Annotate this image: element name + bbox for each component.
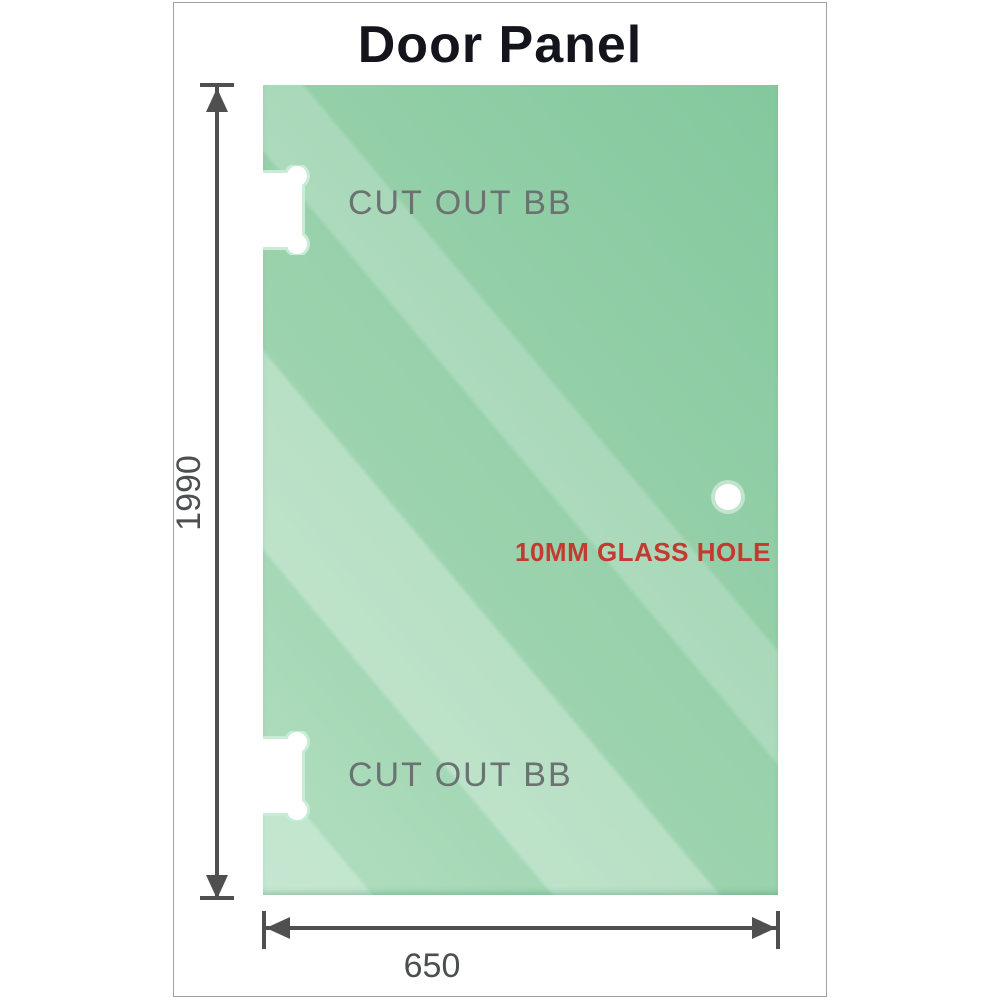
width-dimension-right-tick	[776, 911, 780, 949]
hinge-cutout-top-shape	[263, 165, 310, 255]
diagram-frame: Door Panel	[173, 2, 827, 997]
hinge-cutout-bottom-shape	[263, 731, 310, 821]
arrow-down-icon	[206, 875, 228, 899]
arrow-right-icon	[752, 917, 776, 939]
arrow-left-icon	[266, 917, 290, 939]
cutout-top-label: CUT OUT BB	[348, 185, 573, 221]
glass-hole-label: 10MM GLASS HOLE	[515, 537, 715, 568]
door-panel-diagram-page: Door Panel	[0, 0, 1000, 1000]
height-dimension-line	[215, 87, 219, 900]
hinge-cutout-bottom	[263, 731, 313, 821]
cutout-bottom-label: CUT OUT BB	[348, 757, 573, 793]
arrow-up-icon	[206, 88, 228, 112]
width-dimension-label: 650	[372, 947, 492, 986]
width-dimension-line	[266, 926, 776, 930]
height-dimension-label: 1990	[169, 433, 209, 553]
glass-hole	[715, 484, 741, 510]
glass-panel: CUT OUT BB CUT OUT BB 10MM GLASS HOLE	[263, 85, 778, 895]
hinge-cutout-top	[263, 165, 313, 255]
page-title: Door Panel	[174, 15, 826, 75]
